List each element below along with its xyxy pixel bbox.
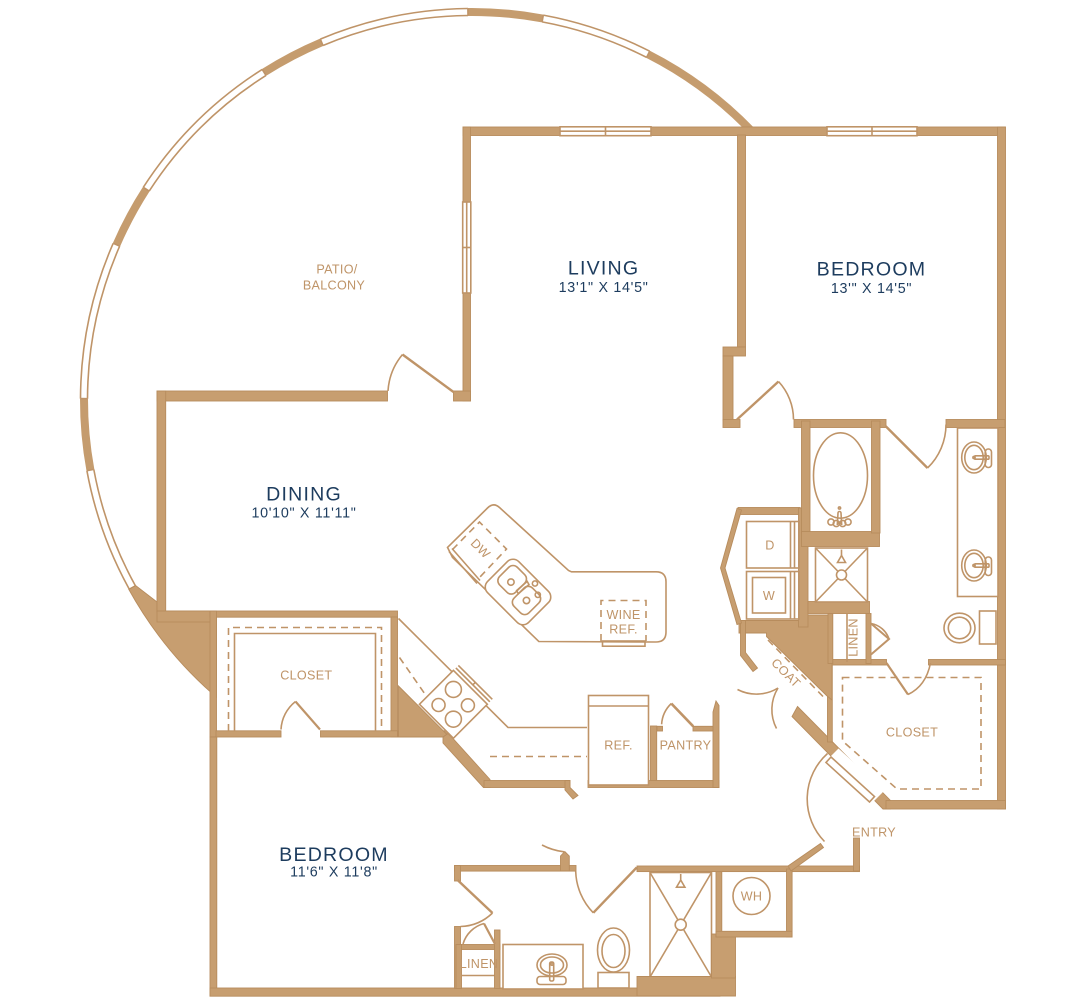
svg-text:D: D bbox=[765, 539, 774, 553]
svg-text:11'6" X 11'8": 11'6" X 11'8" bbox=[290, 865, 378, 881]
svg-text:REF.: REF. bbox=[609, 622, 638, 636]
svg-text:WINE: WINE bbox=[606, 608, 640, 622]
svg-text:ENTRY: ENTRY bbox=[852, 826, 896, 840]
svg-text:CLOSET: CLOSET bbox=[886, 726, 938, 740]
svg-text:W: W bbox=[763, 589, 775, 603]
svg-text:13'1" X 14'5": 13'1" X 14'5" bbox=[559, 280, 649, 296]
svg-text:DINING: DINING bbox=[266, 483, 342, 505]
svg-text:LIVING: LIVING bbox=[568, 258, 639, 280]
svg-text:BEDROOM: BEDROOM bbox=[817, 259, 927, 281]
svg-text:REF.: REF. bbox=[604, 739, 633, 753]
svg-text:CLOSET: CLOSET bbox=[280, 669, 332, 683]
svg-text:LINEN: LINEN bbox=[847, 618, 861, 657]
svg-text:10'10" X 11'11": 10'10" X 11'11" bbox=[251, 506, 356, 522]
svg-text:BEDROOM: BEDROOM bbox=[279, 844, 389, 866]
svg-text:13'" X 14'5": 13'" X 14'5" bbox=[831, 281, 912, 297]
svg-text:PATIO/: PATIO/ bbox=[316, 263, 357, 277]
svg-text:WH: WH bbox=[741, 890, 763, 904]
svg-text:BALCONY: BALCONY bbox=[303, 279, 366, 293]
svg-text:LINEN: LINEN bbox=[460, 957, 499, 971]
svg-text:PANTRY: PANTRY bbox=[660, 739, 712, 753]
